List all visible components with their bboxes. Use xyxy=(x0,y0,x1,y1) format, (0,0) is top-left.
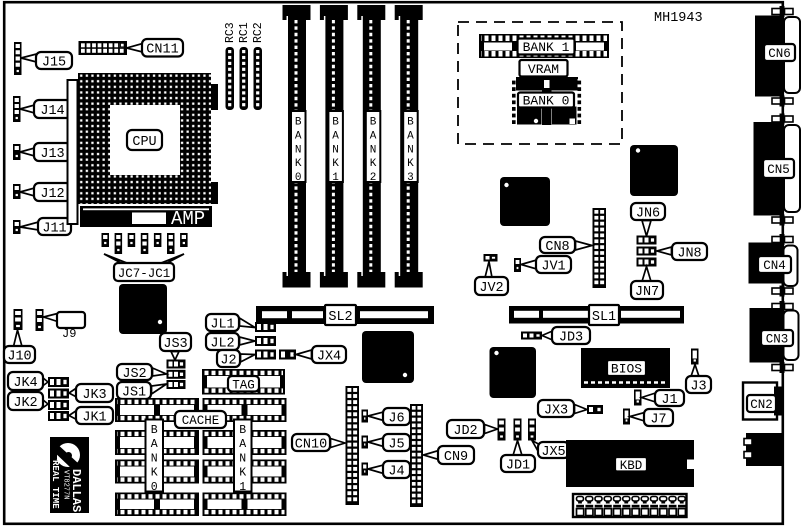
svg-text:N: N xyxy=(407,144,414,156)
svg-text:0: 0 xyxy=(295,172,302,184)
svg-text:B: B xyxy=(239,424,246,437)
svg-text:JK4: JK4 xyxy=(13,376,37,391)
svg-text:0: 0 xyxy=(151,481,158,494)
svg-text:1: 1 xyxy=(332,172,339,184)
svg-text:J14: J14 xyxy=(40,104,64,119)
svg-text:1: 1 xyxy=(239,481,246,494)
svg-text:JK1: JK1 xyxy=(82,410,106,425)
svg-text:JD1: JD1 xyxy=(506,458,530,473)
svg-text:JN8: JN8 xyxy=(677,246,701,261)
svg-text:K: K xyxy=(295,158,302,170)
svg-text:CN6: CN6 xyxy=(768,47,791,61)
svg-text:CN9: CN9 xyxy=(444,450,468,465)
svg-text:B: B xyxy=(370,117,377,129)
svg-text:J9: J9 xyxy=(62,327,76,341)
svg-text:A: A xyxy=(151,438,158,451)
svg-text:TAG: TAG xyxy=(232,378,255,392)
svg-text:N: N xyxy=(332,144,339,156)
svg-text:A: A xyxy=(295,130,302,142)
svg-text:B: B xyxy=(407,117,414,129)
svg-text:JK2: JK2 xyxy=(13,396,37,411)
svg-text:JK3: JK3 xyxy=(82,388,106,403)
svg-text:CN2: CN2 xyxy=(750,398,773,412)
svg-text:J12: J12 xyxy=(40,187,64,202)
svg-text:2: 2 xyxy=(370,172,377,184)
svg-text:JN6: JN6 xyxy=(636,206,660,221)
svg-text:RC1: RC1 xyxy=(238,22,251,43)
svg-text:J6: J6 xyxy=(388,411,404,426)
svg-text:BANK 1: BANK 1 xyxy=(523,40,570,55)
svg-text:JX5: JX5 xyxy=(541,445,565,460)
svg-text:CPU: CPU xyxy=(132,135,156,150)
svg-text:SL2: SL2 xyxy=(328,310,352,325)
svg-text:JD2: JD2 xyxy=(453,424,477,439)
svg-text:J15: J15 xyxy=(42,55,66,70)
svg-text:VRAM: VRAM xyxy=(528,62,559,77)
svg-text:K: K xyxy=(239,467,246,480)
svg-text:J2: J2 xyxy=(220,353,236,368)
svg-text:B: B xyxy=(151,424,158,437)
svg-text:N: N xyxy=(370,144,377,156)
svg-text:K: K xyxy=(370,158,377,170)
svg-text:J4: J4 xyxy=(388,464,404,479)
svg-text:N: N xyxy=(295,144,302,156)
svg-text:KBD: KBD xyxy=(620,459,643,473)
svg-text:CN10: CN10 xyxy=(295,437,327,452)
svg-text:A: A xyxy=(370,130,377,142)
svg-text:K: K xyxy=(407,158,414,170)
svg-text:B: B xyxy=(332,117,339,129)
svg-text:JD3: JD3 xyxy=(559,330,583,345)
svg-text:JL1: JL1 xyxy=(210,317,234,332)
svg-text:VT8277N: VT8277N xyxy=(62,470,70,499)
svg-text:J7: J7 xyxy=(650,412,666,427)
svg-text:CN8: CN8 xyxy=(545,240,569,255)
svg-text:DALLAS: DALLAS xyxy=(69,469,83,512)
svg-text:JS3: JS3 xyxy=(163,337,187,352)
svg-text:A: A xyxy=(239,438,246,451)
svg-text:J10: J10 xyxy=(7,349,31,364)
svg-text:J1: J1 xyxy=(661,393,677,408)
svg-text:CN11: CN11 xyxy=(146,43,178,58)
svg-text:JV1: JV1 xyxy=(541,259,565,274)
svg-text:JC7-JC1: JC7-JC1 xyxy=(118,267,171,281)
svg-text:A: A xyxy=(332,130,339,142)
svg-text:BANK 0: BANK 0 xyxy=(523,94,570,109)
svg-text:REAL TIME: REAL TIME xyxy=(50,460,60,509)
svg-text:N: N xyxy=(151,452,158,465)
svg-text:CN5: CN5 xyxy=(767,163,790,177)
svg-text:B: B xyxy=(295,117,302,129)
svg-text:JX3: JX3 xyxy=(544,403,568,418)
svg-text:MH1943: MH1943 xyxy=(654,11,703,26)
svg-text:CN4: CN4 xyxy=(763,259,786,273)
svg-text:K: K xyxy=(332,158,339,170)
svg-text:RC2: RC2 xyxy=(252,22,265,43)
svg-text:A: A xyxy=(407,130,414,142)
svg-text:AMP: AMP xyxy=(171,208,205,230)
svg-text:JV2: JV2 xyxy=(479,281,503,296)
svg-text:N: N xyxy=(239,452,246,465)
svg-text:J11: J11 xyxy=(42,221,66,236)
svg-text:JS2: JS2 xyxy=(122,367,146,382)
svg-text:CACHE: CACHE xyxy=(182,414,220,428)
svg-text:CN3: CN3 xyxy=(766,333,789,347)
svg-text:RC3: RC3 xyxy=(224,22,237,43)
svg-text:J3: J3 xyxy=(690,379,706,394)
svg-text:K: K xyxy=(151,467,158,480)
svg-text:3: 3 xyxy=(407,172,414,184)
svg-text:BIOS: BIOS xyxy=(611,362,642,377)
svg-text:JN7: JN7 xyxy=(635,285,659,300)
svg-text:JX4: JX4 xyxy=(317,349,341,364)
svg-text:J13: J13 xyxy=(40,147,64,162)
svg-text:J5: J5 xyxy=(388,437,404,452)
svg-text:SL1: SL1 xyxy=(592,310,616,325)
